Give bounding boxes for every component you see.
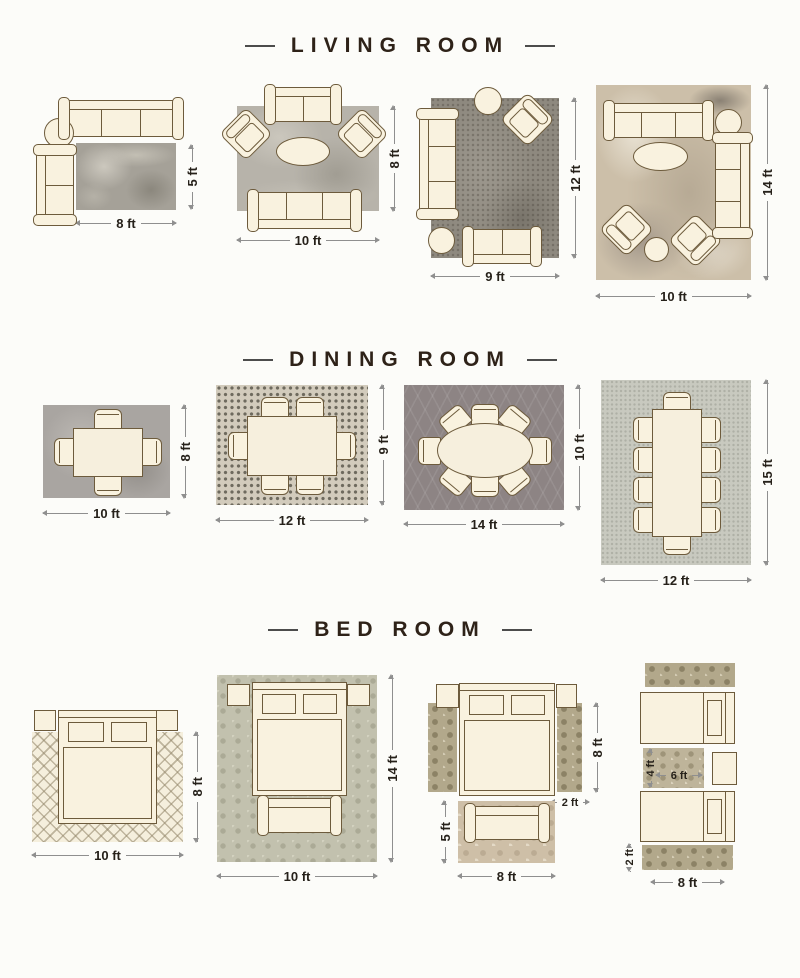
title-dash — [245, 45, 275, 47]
dim-text: 2 ft — [624, 849, 636, 866]
dimension-width: 10 ft — [43, 506, 170, 521]
headboard — [725, 792, 734, 841]
dim-text: 14 ft — [385, 755, 400, 782]
dimension-height: 9 ft — [375, 385, 391, 505]
sofa-body — [607, 103, 710, 138]
dim-line — [656, 775, 666, 776]
dim-text: 10 ft — [93, 506, 120, 521]
blanket — [63, 747, 152, 819]
bench-arm — [330, 795, 342, 836]
headboard — [725, 693, 734, 743]
dim-text: 10 ft — [660, 289, 687, 304]
sofa-seats — [46, 149, 73, 221]
rug — [76, 143, 176, 210]
sofa-seats — [429, 113, 455, 215]
dim-line — [383, 385, 384, 430]
dim-line — [458, 876, 492, 877]
dimension-width: 12 ft — [601, 573, 751, 588]
dimension-height: 8 ft — [189, 732, 205, 842]
dim-text: 5 ft — [185, 167, 200, 187]
section-title-living-room: LIVING ROOM — [0, 34, 800, 58]
dim-text: 14 ft — [471, 517, 498, 532]
section-heading: BED ROOM — [314, 618, 486, 642]
bed — [459, 683, 555, 796]
title-dash — [243, 359, 273, 361]
dim-line — [445, 847, 446, 863]
sofa-body — [466, 229, 538, 264]
dim-text: 10 ft — [94, 848, 121, 863]
dim-line — [596, 296, 655, 297]
dimension-height: 8 ft — [177, 405, 193, 498]
sofa-arm — [603, 100, 615, 141]
bench-seat — [469, 816, 545, 839]
sofa-seats — [716, 137, 740, 234]
dim-line — [185, 405, 186, 437]
dim-line — [521, 876, 555, 877]
title-dash — [502, 629, 532, 631]
dimension-foot-rug-height: 5 ft — [437, 801, 453, 863]
section-title-bed-room: BED ROOM — [0, 618, 800, 642]
dim-line — [651, 781, 652, 787]
dimension-height: 15 ft — [759, 380, 775, 565]
dimension-width: 8 ft — [651, 875, 724, 890]
dim-text: 9 ft — [376, 435, 391, 455]
dim-line — [141, 223, 176, 224]
sofa — [419, 112, 456, 216]
dim-text: 8 ft — [497, 869, 517, 884]
bench-back — [262, 799, 337, 808]
dim-line — [197, 802, 198, 842]
dim-text: 8 ft — [678, 875, 698, 890]
dim-line — [394, 173, 395, 211]
sofa-arm — [350, 189, 362, 232]
sofa-seats — [252, 193, 357, 219]
sofa-back — [63, 101, 179, 110]
dining-table — [247, 416, 337, 476]
sofa-seats — [608, 113, 709, 137]
sofa — [607, 103, 710, 138]
pillow — [111, 722, 147, 742]
sofa-seats — [269, 97, 337, 121]
dim-line — [575, 196, 576, 258]
dim-line — [310, 520, 368, 521]
sofa-arm — [247, 189, 259, 232]
sofa-back — [252, 219, 357, 228]
pillow — [303, 694, 337, 714]
dim-text: 5 ft — [438, 822, 453, 842]
sofa-body — [715, 136, 750, 235]
sofa-arm — [33, 144, 77, 156]
section-heading: DINING ROOM — [289, 348, 511, 372]
headboard — [460, 684, 554, 691]
nightstand — [156, 710, 178, 731]
dim-line — [445, 801, 446, 817]
dimension-width: 10 ft — [32, 848, 183, 863]
sofa-arm — [33, 214, 77, 226]
sofa — [36, 148, 74, 222]
section-heading: LIVING ROOM — [291, 34, 509, 58]
nightstand — [436, 684, 459, 708]
dim-line — [692, 775, 702, 776]
sofa-arm — [416, 108, 459, 120]
headboard — [253, 683, 346, 690]
dim-line — [185, 466, 186, 498]
pillow — [469, 695, 504, 715]
nightstand — [34, 710, 56, 731]
dim-line — [651, 882, 673, 883]
bench-back — [469, 807, 545, 816]
bench — [468, 806, 546, 840]
sofa-arm — [712, 227, 753, 239]
pillow — [262, 694, 296, 714]
sofa-body — [36, 148, 74, 222]
bed — [640, 692, 735, 744]
dim-line — [510, 276, 559, 277]
dim-text: 2 ft — [562, 797, 579, 809]
dim-text: 8 ft — [178, 442, 193, 462]
title-dash — [525, 45, 555, 47]
dim-text: 8 ft — [116, 216, 136, 231]
dim-line — [217, 876, 279, 877]
dim-line — [43, 513, 88, 514]
dim-line — [694, 580, 751, 581]
sofa — [268, 87, 338, 122]
dim-line — [575, 98, 576, 160]
dim-text: 14 ft — [760, 169, 775, 196]
dimension-height: 10 ft — [571, 385, 587, 510]
pillow-row — [253, 690, 346, 714]
dim-line — [192, 192, 193, 209]
sofa-arm — [462, 226, 474, 267]
coffee-table — [276, 137, 330, 166]
dim-text: 8 ft — [190, 777, 205, 797]
dim-line — [125, 513, 170, 514]
dim-text: 8 ft — [590, 738, 605, 758]
nightstand — [556, 684, 577, 708]
dim-line — [404, 524, 466, 525]
runner-rug — [428, 703, 457, 792]
sofa-body — [419, 112, 456, 216]
dimension-width: 12 ft — [216, 513, 368, 528]
sofa — [715, 136, 750, 235]
pillow — [707, 799, 722, 834]
runner-rug — [642, 845, 733, 870]
rug-size-guide: LIVING ROOM 8 ft 5 ft — [0, 0, 800, 978]
dimension-width: 8 ft — [76, 216, 176, 231]
sofa-back — [740, 137, 749, 234]
sofa-arm — [172, 97, 184, 140]
dim-line — [702, 882, 724, 883]
dimension-height: 5 ft — [184, 145, 200, 209]
title-dash — [527, 359, 557, 361]
dim-line — [76, 223, 111, 224]
sofa-body — [251, 192, 358, 229]
side-table — [474, 87, 502, 115]
coffee-table — [633, 142, 688, 171]
blanket — [257, 719, 342, 791]
bench — [261, 798, 338, 833]
dim-text: 12 ft — [279, 513, 306, 528]
bed — [252, 682, 347, 796]
bench-seat — [262, 808, 337, 832]
dim-line — [767, 85, 768, 164]
bench-body — [468, 806, 546, 840]
dim-line — [692, 296, 751, 297]
dining-table — [437, 423, 533, 478]
pillow — [707, 700, 722, 736]
dim-line — [502, 524, 564, 525]
dim-line — [392, 675, 393, 750]
ottoman — [428, 227, 455, 254]
bed — [640, 791, 735, 842]
bed — [58, 710, 157, 824]
dim-line — [579, 385, 580, 429]
pillow — [68, 722, 104, 742]
dim-line — [601, 580, 658, 581]
sofa-arm — [330, 84, 342, 125]
sofa-seats — [63, 110, 179, 136]
dim-line — [192, 145, 193, 162]
dim-text: 8 ft — [387, 149, 402, 169]
side-table — [644, 237, 669, 262]
blanket — [464, 720, 550, 791]
runner-rug — [557, 703, 582, 792]
dim-line — [579, 466, 580, 510]
dimension-width: 9 ft — [431, 269, 559, 284]
dim-line — [394, 106, 395, 144]
dim-line — [237, 240, 290, 241]
title-dash — [268, 629, 298, 631]
dimension-width: 10 ft — [596, 289, 751, 304]
sofa-body — [268, 87, 338, 122]
dim-line — [651, 749, 652, 755]
bench-body — [261, 798, 338, 833]
dim-text: 10 ft — [295, 233, 322, 248]
dim-line — [326, 240, 379, 241]
dim-line — [767, 491, 768, 565]
sofa-arm — [58, 97, 70, 140]
dim-line — [583, 802, 589, 803]
dim-text: 6 ft — [671, 770, 688, 782]
dimension-runner-width: 2 ft — [551, 795, 589, 810]
dimension-height: 14 ft — [759, 85, 775, 280]
bench-arm — [464, 803, 476, 843]
dining-table — [652, 409, 702, 537]
dim-text: 15 ft — [760, 459, 775, 486]
sofa-arm — [712, 132, 753, 144]
sofa-arm — [530, 226, 542, 267]
dim-line — [597, 703, 598, 733]
dimension-runner-width: 2 ft — [622, 844, 638, 871]
dim-line — [597, 762, 598, 792]
sofa — [62, 100, 180, 137]
pillow — [511, 695, 546, 715]
dimension-foot-rug-width: 8 ft — [458, 869, 555, 884]
dim-text: 12 ft — [663, 573, 690, 588]
bench-arm — [257, 795, 269, 836]
sofa-body — [62, 100, 180, 137]
nightstand — [227, 684, 250, 706]
dim-line — [216, 520, 274, 521]
sofa-back — [269, 88, 337, 97]
dim-line — [767, 201, 768, 280]
dim-text: 9 ft — [485, 269, 505, 284]
mattress — [641, 792, 704, 841]
dimension-width: 10 ft — [237, 233, 379, 248]
dim-line — [767, 380, 768, 454]
dim-line — [383, 460, 384, 505]
pillow-row — [59, 718, 156, 742]
section-title-dining-room: DINING ROOM — [0, 348, 800, 372]
dimension-runner-length: 8 ft — [589, 703, 605, 792]
nightstand — [712, 752, 737, 785]
sofa-back — [420, 113, 429, 215]
dim-text: 10 ft — [284, 869, 311, 884]
sofa-back — [37, 149, 46, 221]
dim-line — [126, 855, 183, 856]
nightstand — [347, 684, 370, 706]
sofa — [466, 229, 538, 264]
sofa — [251, 192, 358, 229]
dining-table — [73, 428, 143, 477]
dimension-height: 14 ft — [384, 675, 400, 862]
dim-line — [431, 276, 480, 277]
pillow-row — [460, 691, 554, 715]
sofa-arm — [416, 208, 459, 220]
dimension-height: 8 ft — [386, 106, 402, 211]
sofa-arm — [264, 84, 276, 125]
dim-text: 10 ft — [572, 434, 587, 461]
dim-line — [197, 732, 198, 772]
dimension-width: 10 ft — [217, 869, 377, 884]
sofa-back — [467, 254, 537, 263]
dimension-height: 12 ft — [567, 98, 583, 258]
headboard — [59, 711, 156, 718]
dimension-width: 14 ft — [404, 517, 564, 532]
sofa-back — [608, 104, 709, 113]
dim-text: 12 ft — [568, 165, 583, 192]
mattress — [641, 693, 704, 743]
runner-rug — [645, 663, 735, 687]
dimension-accent-rug-width: 6 ft — [656, 768, 702, 783]
dim-line — [32, 855, 89, 856]
dim-line — [315, 876, 377, 877]
bench-arm — [538, 803, 550, 843]
dim-line — [392, 787, 393, 862]
sofa-seats — [467, 230, 537, 254]
